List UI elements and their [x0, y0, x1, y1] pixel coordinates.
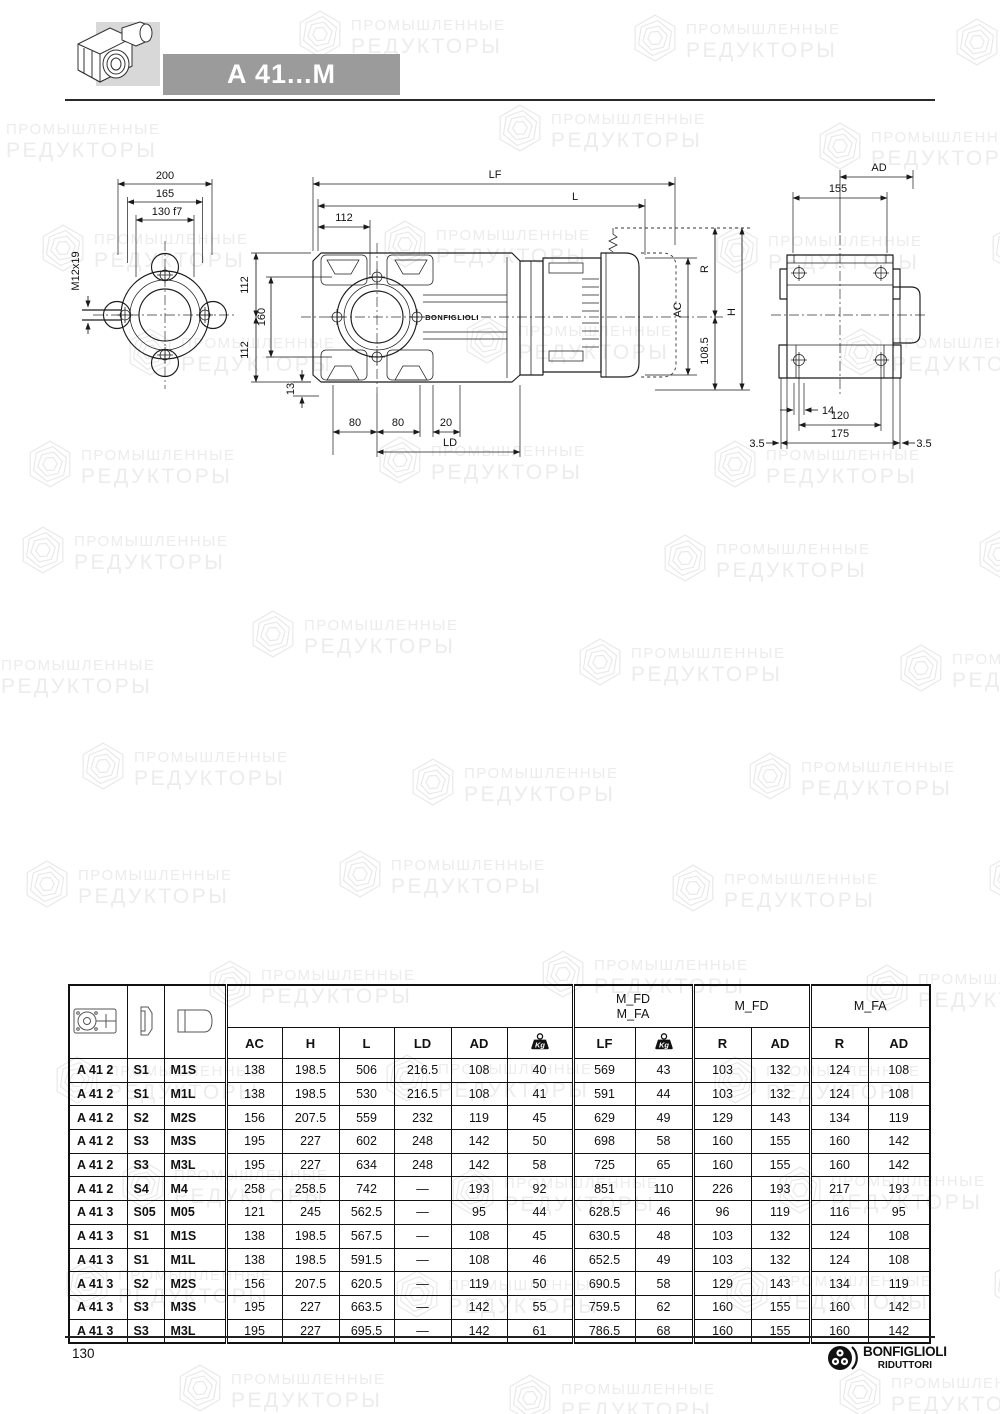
svg-text:Kg: Kg [535, 1040, 545, 1049]
table-cell: A 41 3 [69, 1295, 127, 1319]
dim-label: 112 [335, 212, 353, 224]
table-cell: 851 [573, 1177, 635, 1201]
table-cell: 143 [751, 1272, 810, 1296]
table-cell: 742 [339, 1177, 394, 1201]
table-cell: M3L [164, 1153, 226, 1177]
table-cell: 217 [810, 1177, 868, 1201]
col-ac: AC [226, 1028, 282, 1059]
table-row: A 41 2S2M2S156207.5559232119456294912914… [69, 1106, 930, 1130]
table-cell: S2 [127, 1272, 164, 1296]
table-cell: 142 [451, 1153, 507, 1177]
table-cell: 155 [751, 1153, 810, 1177]
table-cell: S1 [127, 1224, 164, 1248]
table-cell: 108 [451, 1248, 507, 1272]
table-cell: 95 [868, 1201, 930, 1225]
table-body: A 41 2S1M1S138198.5506216.51084056943103… [69, 1059, 930, 1344]
table-cell: 156 [226, 1272, 282, 1296]
table-cell: 108 [868, 1082, 930, 1106]
dim-label: 120 [831, 410, 849, 422]
table-row: A 41 2S1M1S138198.5506216.51084056943103… [69, 1059, 930, 1083]
table-cell: 132 [751, 1224, 810, 1248]
flange-icon [127, 985, 164, 1059]
dim-label: LF [489, 169, 502, 181]
side-view: BONFIGLIOLI [239, 169, 750, 457]
front-view: M12x19 200 165 130 f7 [70, 170, 237, 389]
logo-line2: RIDUTTORI [878, 1361, 932, 1371]
table-cell: S05 [127, 1201, 164, 1225]
table-cell: — [394, 1224, 451, 1248]
table-cell: 160 [693, 1130, 751, 1154]
table-cell: S2 [127, 1106, 164, 1130]
table-cell: 227 [282, 1130, 339, 1154]
table-cell: 559 [339, 1106, 394, 1130]
dim-label: 80 [392, 417, 404, 429]
table-cell: 160 [810, 1319, 868, 1343]
brand-label: BONFIGLIOLI [425, 313, 479, 322]
table-cell: 160 [693, 1153, 751, 1177]
table-cell: 50 [507, 1272, 573, 1296]
col-l: L [339, 1028, 394, 1059]
dim-label: 3.5 [749, 438, 764, 450]
group-mfd-mfa: M_FD M_FA [573, 985, 693, 1028]
dimensions-table: M_FD M_FA M_FD M_FA AC H L LD AD [68, 984, 931, 1344]
table-cell: 108 [868, 1059, 930, 1083]
table-cell: 506 [339, 1059, 394, 1083]
table-cell: 108 [451, 1059, 507, 1083]
group-empty [226, 985, 573, 1028]
table-cell: 108 [451, 1224, 507, 1248]
table-cell: 68 [635, 1319, 693, 1343]
gearbox-top-view-icon [69, 985, 127, 1059]
table-cell: 142 [451, 1130, 507, 1154]
col-h: H [282, 1028, 339, 1059]
table-cell: A 41 3 [69, 1248, 127, 1272]
table-cell: S3 [127, 1319, 164, 1343]
header-divider [65, 99, 935, 101]
table-cell: 55 [507, 1295, 573, 1319]
table-cell: 155 [751, 1295, 810, 1319]
table-cell: 690.5 [573, 1272, 635, 1296]
table-cell: 124 [810, 1248, 868, 1272]
table-cell: 155 [751, 1319, 810, 1343]
group-mfa: M_FA [810, 985, 930, 1028]
dim-label: 112 [239, 276, 251, 294]
table-row: A 41 2S1M1L138198.5530216.51084159144103… [69, 1082, 930, 1106]
dim-label: AD [871, 162, 886, 174]
table-cell: 569 [573, 1059, 635, 1083]
dim-label: L [572, 191, 578, 203]
table-cell: 142 [868, 1153, 930, 1177]
col-ld: LD [394, 1028, 451, 1059]
table-cell: 143 [751, 1106, 810, 1130]
table-cell: 155 [751, 1130, 810, 1154]
table-cell: 41 [507, 1082, 573, 1106]
table-cell: — [394, 1295, 451, 1319]
rear-view: AD 155 [749, 162, 931, 450]
table-row: A 41 3S1M1S138198.5567.5—10845630.548103… [69, 1224, 930, 1248]
dim-label: 108.5 [699, 337, 711, 365]
table-cell: 630.5 [573, 1224, 635, 1248]
table-cell: 124 [810, 1059, 868, 1083]
table-cell: 245 [282, 1201, 339, 1225]
table-cell: 58 [635, 1272, 693, 1296]
col-r-mfa: R [810, 1028, 868, 1059]
table-cell: 62 [635, 1295, 693, 1319]
table-cell: 195 [226, 1153, 282, 1177]
dim-label: LD [443, 437, 457, 449]
table-cell: 227 [282, 1153, 339, 1177]
group-mfd: M_FD [693, 985, 810, 1028]
table-cell: 46 [507, 1248, 573, 1272]
table-cell: 634 [339, 1153, 394, 1177]
table-cell: 132 [751, 1248, 810, 1272]
table-cell: 695.5 [339, 1319, 394, 1343]
dim-label: H [726, 308, 738, 316]
table-cell: 138 [226, 1059, 282, 1083]
kg-weight-icon: Kg [635, 1028, 693, 1059]
motor-icon [164, 985, 226, 1059]
table-cell: 124 [810, 1082, 868, 1106]
table-cell: 258.5 [282, 1177, 339, 1201]
table-cell: 216.5 [394, 1059, 451, 1083]
table-row: A 41 3S2M2S156207.5620.5—11950690.558129… [69, 1272, 930, 1296]
table-cell: 58 [635, 1130, 693, 1154]
table-cell: 193 [451, 1177, 507, 1201]
table-cell: 132 [751, 1059, 810, 1083]
svg-text:Kg: Kg [659, 1040, 669, 1049]
table-cell: 43 [635, 1059, 693, 1083]
table-cell: M1S [164, 1224, 226, 1248]
table-cell: 591 [573, 1082, 635, 1106]
table-cell: — [394, 1248, 451, 1272]
table-cell: 134 [810, 1106, 868, 1130]
dim-label: 160 [256, 308, 268, 326]
table-cell: 198.5 [282, 1248, 339, 1272]
table-cell: 45 [507, 1106, 573, 1130]
page-title: A 41...M [227, 59, 336, 90]
dim-label: 112 [239, 341, 251, 359]
table-row: A 41 3S05M05121245562.5—9544628.54696119… [69, 1201, 930, 1225]
table-cell: S1 [127, 1082, 164, 1106]
table-cell: A 41 2 [69, 1106, 127, 1130]
table-cell: 652.5 [573, 1248, 635, 1272]
table-row: A 41 3S3M3L195227695.5—14261786.56816015… [69, 1319, 930, 1343]
table-cell: 96 [693, 1201, 751, 1225]
table-cell: 138 [226, 1082, 282, 1106]
table-cell: M1L [164, 1082, 226, 1106]
table-cell: M05 [164, 1201, 226, 1225]
dim-label: R [699, 265, 711, 273]
title-banner: A 41...M [163, 54, 400, 95]
table-cell: 142 [868, 1319, 930, 1343]
table-cell: 725 [573, 1153, 635, 1177]
table-cell: 142 [451, 1319, 507, 1343]
table-cell: 103 [693, 1224, 751, 1248]
table-cell: M3S [164, 1295, 226, 1319]
table-cell: 49 [635, 1248, 693, 1272]
table-cell: 698 [573, 1130, 635, 1154]
col-ad-mfa: AD [868, 1028, 930, 1059]
table-cell: 108 [451, 1082, 507, 1106]
table-cell: 232 [394, 1106, 451, 1130]
table-row: A 41 3S3M3S195227663.5—14255759.56216015… [69, 1295, 930, 1319]
table-cell: 198.5 [282, 1059, 339, 1083]
table-cell: 142 [868, 1130, 930, 1154]
table-cell: 121 [226, 1201, 282, 1225]
col-ad-mfd: AD [751, 1028, 810, 1059]
table-cell: 103 [693, 1082, 751, 1106]
dim-label: 155 [829, 183, 847, 195]
bonfiglioli-logo: BONFIGLIOLI RIDUTTORI [826, 1342, 947, 1374]
dimensions-table-wrap: M_FD M_FA M_FD M_FA AC H L LD AD [68, 984, 931, 1344]
dim-label: AC [672, 302, 684, 317]
table-row: A 41 2S4M4258258.5742—193928511102261932… [69, 1177, 930, 1201]
table-cell: 116 [810, 1201, 868, 1225]
table-cell: 92 [507, 1177, 573, 1201]
table-cell: — [394, 1177, 451, 1201]
table-cell: A 41 3 [69, 1272, 127, 1296]
table-cell: 663.5 [339, 1295, 394, 1319]
table-cell: A 41 2 [69, 1082, 127, 1106]
table-cell: A 41 3 [69, 1319, 127, 1343]
table-cell: A 41 2 [69, 1153, 127, 1177]
dim-label: 20 [440, 417, 452, 429]
table-row: A 41 2S3M3L19522763424814258725651601551… [69, 1153, 930, 1177]
table-cell: 759.5 [573, 1295, 635, 1319]
table-cell: 48 [635, 1224, 693, 1248]
table-cell: 95 [451, 1201, 507, 1225]
table-cell: 108 [868, 1248, 930, 1272]
table-cell: 193 [868, 1177, 930, 1201]
table-cell: 138 [226, 1248, 282, 1272]
col-r-mfd: R [693, 1028, 751, 1059]
table-cell: A 41 3 [69, 1224, 127, 1248]
table-cell: 591.5 [339, 1248, 394, 1272]
table-cell: 227 [282, 1295, 339, 1319]
table-cell: A 41 2 [69, 1177, 127, 1201]
table-cell: 108 [868, 1224, 930, 1248]
table-cell: 119 [868, 1106, 930, 1130]
table-cell: 193 [751, 1177, 810, 1201]
dim-label: 200 [156, 170, 174, 182]
table-cell: 227 [282, 1319, 339, 1343]
table-cell: 110 [635, 1177, 693, 1201]
dim-label: M12x19 [70, 251, 82, 290]
table-cell: — [394, 1319, 451, 1343]
table-cell: 628.5 [573, 1201, 635, 1225]
table-cell: 226 [693, 1177, 751, 1201]
table-cell: 248 [394, 1153, 451, 1177]
dim-label: 130 f7 [152, 206, 183, 218]
table-cell: 119 [868, 1272, 930, 1296]
table-cell: 207.5 [282, 1106, 339, 1130]
table-cell: M2S [164, 1106, 226, 1130]
table-cell: 61 [507, 1319, 573, 1343]
dim-label: 3.5 [916, 438, 931, 450]
table-cell: 530 [339, 1082, 394, 1106]
table-cell: 142 [868, 1295, 930, 1319]
table-cell: 119 [751, 1201, 810, 1225]
table-cell: 124 [810, 1224, 868, 1248]
dim-label: 13 [285, 383, 297, 395]
table-cell: 129 [693, 1272, 751, 1296]
table-cell: 567.5 [339, 1224, 394, 1248]
table-cell: 49 [635, 1106, 693, 1130]
table-row: A 41 2S3M3S19522760224814250698581601551… [69, 1130, 930, 1154]
dim-label: 175 [831, 428, 849, 440]
dim-label: 165 [156, 188, 174, 200]
footer-divider [65, 1336, 935, 1338]
table-cell: 132 [751, 1082, 810, 1106]
table-cell: M3S [164, 1130, 226, 1154]
table-cell: — [394, 1272, 451, 1296]
table-cell: 103 [693, 1248, 751, 1272]
table-cell: 248 [394, 1130, 451, 1154]
table-cell: 562.5 [339, 1201, 394, 1225]
bonfiglioli-gear-icon [826, 1342, 858, 1374]
col-ad: AD [451, 1028, 507, 1059]
table-cell: 45 [507, 1224, 573, 1248]
table-cell: M3L [164, 1319, 226, 1343]
table-cell: 160 [810, 1153, 868, 1177]
table-cell: S3 [127, 1295, 164, 1319]
table-cell: M1L [164, 1248, 226, 1272]
table-cell: A 41 2 [69, 1130, 127, 1154]
table-cell: 119 [451, 1106, 507, 1130]
table-cell: A 41 2 [69, 1059, 127, 1083]
table-cell: 103 [693, 1059, 751, 1083]
technical-drawing: M12x19 200 165 130 f7 [55, 105, 950, 515]
table-cell: M4 [164, 1177, 226, 1201]
logo-line1: BONFIGLIOLI [863, 1345, 947, 1359]
table-cell: 258 [226, 1177, 282, 1201]
table-cell: 40 [507, 1059, 573, 1083]
table-cell: 156 [226, 1106, 282, 1130]
table-cell: 216.5 [394, 1082, 451, 1106]
table-cell: 142 [451, 1295, 507, 1319]
table-cell: 198.5 [282, 1224, 339, 1248]
table-cell: 620.5 [339, 1272, 394, 1296]
table-cell: 58 [507, 1153, 573, 1177]
table-cell: 160 [693, 1295, 751, 1319]
table-cell: 134 [810, 1272, 868, 1296]
table-cell: 198.5 [282, 1082, 339, 1106]
table-cell: S4 [127, 1177, 164, 1201]
table-cell: 195 [226, 1130, 282, 1154]
catalog-page: ПРОМЫШЛЕННЫЕ РЕДУКТОРЫ ПРОМЫШЛЕННЫЕ РЕДУ… [0, 0, 1000, 1414]
table-row: A 41 3S1M1L138198.5591.5—10846652.549103… [69, 1248, 930, 1272]
table-cell: 44 [635, 1082, 693, 1106]
table-cell: 195 [226, 1295, 282, 1319]
table-cell: 65 [635, 1153, 693, 1177]
table-cell: A 41 3 [69, 1201, 127, 1225]
table-cell: 786.5 [573, 1319, 635, 1343]
table-cell: 129 [693, 1106, 751, 1130]
table-cell: 195 [226, 1319, 282, 1343]
table-cell: 50 [507, 1130, 573, 1154]
table-cell: 160 [693, 1319, 751, 1343]
table-cell: 138 [226, 1224, 282, 1248]
table-cell: M1S [164, 1059, 226, 1083]
table-cell: S1 [127, 1059, 164, 1083]
kg-weight-icon: Kg [507, 1028, 573, 1059]
gearmotor-photo-icon [70, 14, 162, 94]
table-cell: 119 [451, 1272, 507, 1296]
table-cell: S3 [127, 1130, 164, 1154]
table-cell: 160 [810, 1295, 868, 1319]
table-cell: M2S [164, 1272, 226, 1296]
table-cell: S1 [127, 1248, 164, 1272]
table-cell: 46 [635, 1201, 693, 1225]
page-number: 130 [72, 1346, 95, 1361]
table-cell: — [394, 1201, 451, 1225]
table-cell: 602 [339, 1130, 394, 1154]
table-cell: S3 [127, 1153, 164, 1177]
col-lf: LF [573, 1028, 635, 1059]
dim-label: 80 [349, 417, 361, 429]
table-cell: 629 [573, 1106, 635, 1130]
table-cell: 207.5 [282, 1272, 339, 1296]
table-cell: 160 [810, 1130, 868, 1154]
product-thumbnail [70, 14, 162, 99]
table-cell: 44 [507, 1201, 573, 1225]
